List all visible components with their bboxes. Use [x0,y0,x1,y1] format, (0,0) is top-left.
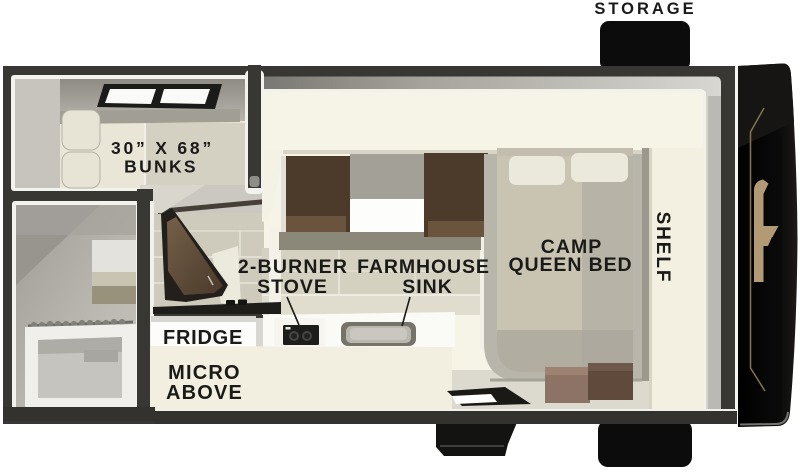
svg-text:MICRO: MICRO [168,362,241,384]
svg-text:STOVE: STOVE [257,276,328,298]
svg-text:BUNKS: BUNKS [124,157,198,177]
svg-text:QUEEN BED: QUEEN BED [508,254,632,276]
svg-text:STORAGE: STORAGE [594,0,696,18]
svg-text:ABOVE: ABOVE [166,382,243,404]
svg-text:FRIDGE: FRIDGE [163,327,243,349]
svg-text:SINK: SINK [402,276,453,298]
svg-text:30” X 68”: 30” X 68” [111,138,214,158]
svg-text:SHELF: SHELF [652,212,673,284]
svg-text:FARMHOUSE: FARMHOUSE [357,256,490,278]
svg-text:2-BURNER: 2-BURNER [238,256,348,278]
